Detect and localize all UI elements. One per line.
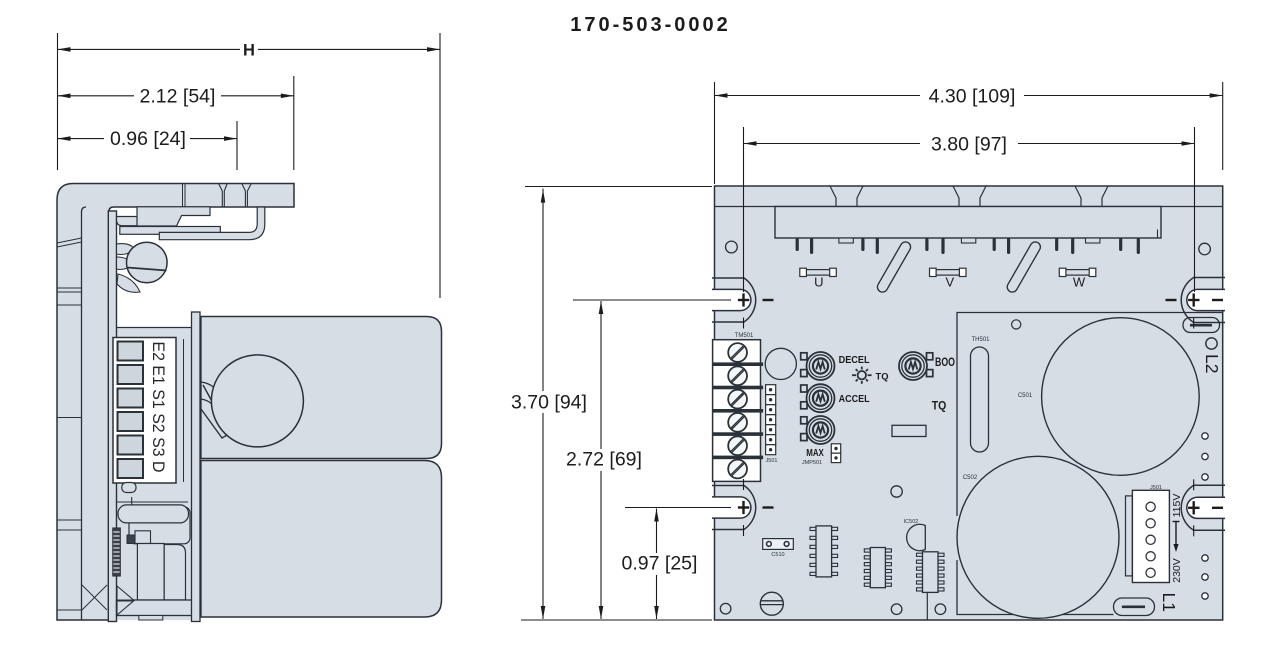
svg-text:230V: 230V — [1171, 558, 1183, 583]
svg-text:L2: L2 — [1202, 354, 1222, 373]
svg-text:C502: C502 — [963, 475, 978, 481]
svg-text:0.97 [25]: 0.97 [25] — [622, 553, 698, 575]
svg-text:4.30 [109]: 4.30 [109] — [929, 85, 1016, 107]
svg-text:J501: J501 — [766, 458, 778, 464]
svg-text:2.12 [54]: 2.12 [54] — [140, 85, 216, 107]
svg-text:E2 E1 S1 S2 S3 D: E2 E1 S1 S2 S3 D — [149, 342, 168, 473]
svg-text:TM501: TM501 — [735, 333, 754, 339]
svg-text:V: V — [945, 275, 954, 290]
svg-text:0.96 [24]: 0.96 [24] — [110, 128, 186, 150]
svg-text:TH501: TH501 — [971, 337, 990, 343]
svg-text:JMP501: JMP501 — [802, 460, 822, 466]
svg-text:L1: L1 — [1159, 593, 1179, 612]
svg-text:170-503-0002: 170-503-0002 — [570, 14, 731, 36]
svg-text:W: W — [1073, 275, 1086, 290]
svg-text:IC502: IC502 — [904, 519, 919, 525]
svg-text:ACCEL: ACCEL — [839, 393, 870, 405]
svg-text:2.72 [69]: 2.72 [69] — [566, 449, 642, 471]
svg-text:H: H — [243, 42, 255, 60]
svg-text:DECEL: DECEL — [839, 354, 871, 366]
svg-text:3.80 [97]: 3.80 [97] — [931, 133, 1007, 155]
svg-text:TQ: TQ — [932, 398, 947, 412]
svg-text:C501: C501 — [1018, 393, 1033, 399]
svg-text:U: U — [814, 275, 823, 290]
svg-text:3.70 [94]: 3.70 [94] — [511, 392, 587, 414]
svg-text:TQ: TQ — [876, 371, 889, 382]
svg-text:MAX: MAX — [806, 447, 824, 459]
svg-text:J501: J501 — [1150, 485, 1162, 491]
svg-text:C510: C510 — [771, 552, 784, 558]
svg-text:BOO: BOO — [935, 355, 955, 369]
